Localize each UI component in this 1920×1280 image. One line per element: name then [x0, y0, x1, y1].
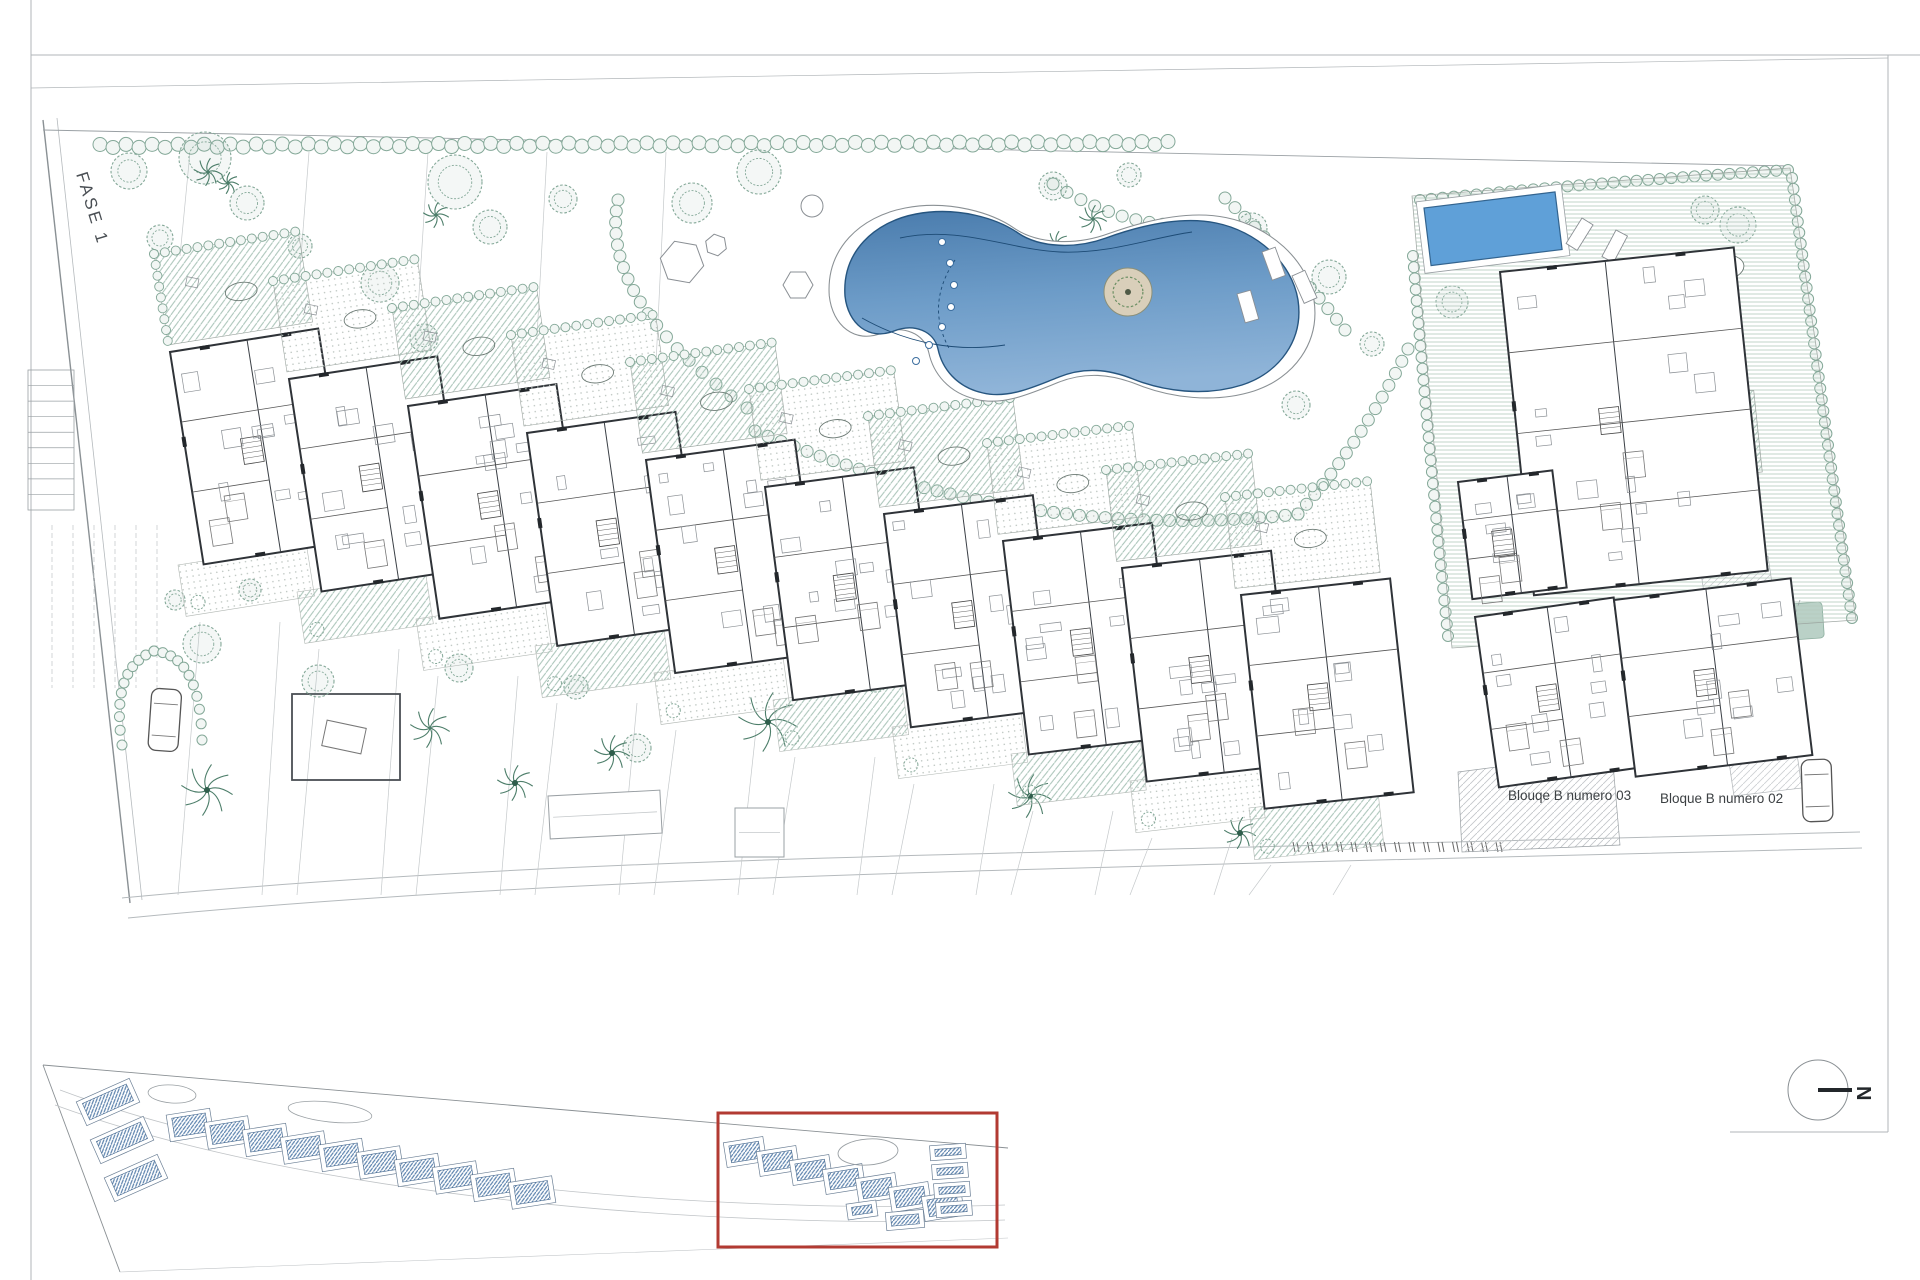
hedge-bush: [1355, 425, 1367, 437]
parking-number-mark: [1413, 842, 1415, 852]
tree-canopy: [111, 153, 147, 189]
bush: [640, 136, 654, 150]
bush: [1031, 135, 1045, 149]
tree: [473, 210, 507, 244]
minimap-pond: [287, 1098, 373, 1127]
tree-canopy: [302, 665, 334, 697]
bush: [106, 140, 120, 154]
bush: [458, 136, 472, 150]
tree-canopy: [473, 210, 507, 244]
hedge-bush: [1322, 303, 1334, 315]
hedge-bush: [1383, 379, 1395, 391]
minimap-pool: [837, 1137, 899, 1167]
tree-canopy: [147, 225, 173, 251]
garden-bush: [1178, 456, 1188, 466]
palm-frond: [738, 717, 768, 727]
palm-trunk: [1237, 830, 1243, 836]
palm-trunk: [609, 750, 615, 756]
hedge-bush: [117, 740, 127, 750]
building-block: [1456, 469, 1567, 605]
bush: [236, 140, 250, 154]
bush: [380, 137, 394, 151]
minimap-building: [930, 1143, 967, 1160]
car-body: [1801, 759, 1833, 822]
garden-terrace: [1220, 476, 1382, 589]
gazebo-hexagon: [783, 272, 813, 298]
hedge-bush: [1339, 324, 1351, 336]
north-label: N: [1852, 1086, 1874, 1100]
parking-number-mark: [1442, 842, 1444, 852]
garden-bush: [1275, 486, 1285, 496]
palm-tree: [497, 765, 533, 801]
hedge-bush: [1075, 194, 1087, 206]
garden-bush: [1253, 488, 1263, 498]
garden-bush: [1221, 451, 1231, 461]
bush: [1122, 138, 1136, 152]
stepping-stone: [939, 239, 946, 246]
palm-frond: [181, 785, 207, 793]
palm-frond: [743, 722, 770, 743]
hedge-bush: [1325, 468, 1337, 480]
hedge-bush: [1229, 202, 1241, 214]
bush: [1135, 135, 1149, 149]
bush: [484, 136, 498, 150]
stepping-stone: [926, 342, 933, 349]
palm-trunk: [204, 787, 210, 793]
building-outline: [1475, 598, 1638, 788]
garden-bush: [1243, 449, 1253, 459]
garden-bush: [1297, 484, 1307, 494]
hedge-bush: [196, 719, 206, 729]
garden-bush: [1145, 460, 1155, 470]
bush: [419, 140, 433, 154]
bush: [327, 137, 341, 151]
minimap-building: [885, 1209, 924, 1230]
hedge-bush: [1116, 210, 1128, 222]
car-body: [148, 688, 182, 752]
overview-minimap: [43, 1065, 1008, 1272]
bush: [940, 138, 954, 152]
building-outline: [1241, 579, 1414, 809]
plot-line: [976, 784, 994, 895]
tree: [183, 625, 221, 663]
bush: [1109, 135, 1123, 149]
minimap-building: [934, 1181, 971, 1198]
bush: [158, 140, 172, 154]
bloque-03-label: Blouqe B numero 03: [1508, 788, 1631, 803]
bush: [1096, 138, 1110, 152]
bush: [314, 140, 328, 154]
top-right-complex: [1412, 168, 1856, 648]
bush: [301, 137, 315, 151]
parking-number-mark: [1438, 842, 1440, 852]
gazebo-hexagon: [706, 234, 727, 256]
minimap-building: [936, 1200, 973, 1217]
palm-frond: [427, 708, 433, 728]
building-block: [1473, 597, 1638, 789]
minimap-building: [76, 1078, 140, 1125]
minimap-building: [846, 1200, 878, 1220]
bush: [1044, 138, 1058, 152]
bush: [770, 136, 784, 150]
bush: [796, 136, 810, 150]
tree-canopy: [1282, 391, 1310, 419]
hedge-bush: [188, 680, 198, 690]
bush: [497, 139, 511, 153]
plot-line: [1214, 838, 1232, 895]
bush: [406, 137, 420, 151]
minimap-building: [90, 1116, 154, 1163]
plot-line: [1333, 865, 1351, 895]
hedge-bush: [1423, 432, 1434, 443]
hedge-bush: [611, 239, 623, 251]
bush: [809, 138, 823, 152]
bush: [471, 139, 485, 153]
bush: [145, 137, 159, 151]
tree: [623, 734, 651, 762]
bush: [861, 138, 875, 152]
car: [148, 688, 182, 752]
hedge-bush: [1402, 343, 1414, 355]
hedge-bush: [1362, 414, 1374, 426]
tree-canopy: [428, 155, 482, 209]
minimap-roof: [939, 1186, 965, 1195]
hedge-bush: [192, 691, 202, 701]
bloque-02-label: Bloque B numero 02: [1660, 791, 1783, 806]
garden-bush: [1167, 457, 1177, 467]
hedge-bush: [1421, 409, 1432, 420]
tree: [1117, 163, 1141, 187]
palm-trunk: [512, 780, 518, 786]
bush: [1005, 135, 1019, 149]
bush: [432, 137, 446, 151]
round-planter: [801, 195, 823, 217]
bush: [340, 140, 354, 154]
gazebo-hexagon: [660, 241, 703, 282]
plot-line: [1095, 811, 1113, 895]
hedge-bush: [634, 296, 646, 308]
hedge-bush: [622, 273, 634, 285]
tree: [737, 150, 781, 194]
bush: [1083, 135, 1097, 149]
hedge-bush: [617, 262, 629, 274]
minimap-building: [104, 1154, 168, 1201]
bush: [953, 135, 967, 149]
site-boundary-left: [43, 120, 130, 903]
bush: [627, 139, 641, 153]
palm-trunk: [765, 719, 771, 725]
parking-number-mark: [1453, 842, 1455, 852]
bush: [575, 139, 589, 153]
hedge-bush: [612, 194, 624, 206]
bush: [744, 136, 758, 150]
bush: [666, 136, 680, 150]
hedge-bush: [197, 735, 207, 745]
plot-line: [892, 784, 914, 895]
hedge-bush: [1415, 340, 1426, 351]
minimap-boundary: [120, 1238, 1008, 1272]
island-tree-trunk: [1125, 289, 1131, 295]
pergola: [735, 808, 784, 857]
tree-canopy: [737, 150, 781, 194]
hedge-bush: [1417, 363, 1428, 374]
bush: [653, 139, 667, 153]
garden-bush: [1264, 487, 1274, 497]
garden-bush: [1210, 452, 1220, 462]
parking-number-mark: [1428, 842, 1430, 852]
tree-canopy: [549, 185, 577, 213]
bush: [614, 136, 628, 150]
garden-bush: [1134, 461, 1144, 471]
hedge-bush: [1413, 318, 1424, 329]
bush: [927, 135, 941, 149]
bush: [523, 139, 537, 153]
palm-frond: [202, 790, 210, 816]
hedge-bush: [1419, 386, 1430, 397]
bush: [731, 139, 745, 153]
sheet-frame-line: [31, 58, 1888, 88]
bush: [835, 138, 849, 152]
bush: [510, 136, 524, 150]
garden-bush: [1156, 459, 1166, 469]
stepping-stone: [948, 304, 955, 311]
tree: [672, 183, 712, 223]
building-block: [1239, 578, 1414, 810]
road-edge: [128, 848, 1862, 918]
bush: [966, 138, 980, 152]
bush: [445, 140, 459, 154]
bush: [992, 138, 1006, 152]
bush: [393, 140, 407, 154]
north-arrow: N: [1788, 1060, 1874, 1120]
bush: [692, 136, 706, 150]
bush: [848, 135, 862, 149]
palm-frond: [1091, 219, 1095, 233]
hedge-bush: [115, 699, 125, 709]
hedge-bush: [184, 670, 194, 680]
garden-bush: [1220, 492, 1230, 502]
stepping-stone: [913, 358, 920, 365]
stairs-outline: [28, 370, 74, 510]
garden-bush: [1188, 455, 1198, 465]
tree-canopy: [230, 186, 264, 220]
hedge-bush: [1369, 403, 1381, 415]
palm-frond: [207, 786, 233, 794]
bush: [1161, 135, 1175, 149]
minimap-roof: [935, 1148, 961, 1157]
hedge-bush: [1412, 307, 1423, 318]
fase-label: FASE 1: [72, 170, 112, 248]
bush: [275, 137, 289, 151]
tree-canopy: [623, 734, 651, 762]
tree-canopy: [1360, 332, 1384, 356]
bush: [718, 136, 732, 150]
garden-bush: [1362, 476, 1372, 486]
stepping-stone: [947, 260, 954, 267]
stepping-stone: [939, 324, 946, 331]
tree: [1039, 172, 1067, 200]
hedge-bush: [1330, 313, 1342, 325]
hedge-bush: [1219, 192, 1231, 204]
garden-bush: [1286, 485, 1296, 495]
minimap-roof: [891, 1214, 920, 1226]
tree-canopy: [1312, 260, 1346, 294]
plot-line: [381, 649, 399, 895]
tree: [1312, 260, 1346, 294]
tree: [230, 186, 264, 220]
hedge-bush: [115, 725, 125, 735]
bush: [1057, 135, 1071, 149]
bush: [874, 135, 888, 149]
bush: [1070, 138, 1084, 152]
tree: [1282, 391, 1310, 419]
bush: [979, 135, 993, 149]
bush: [887, 138, 901, 152]
hedge-bush: [1414, 329, 1425, 340]
hedge-bush: [1348, 436, 1360, 448]
tree: [111, 153, 147, 189]
garden-bush: [1242, 490, 1252, 500]
hedge-bush: [1422, 420, 1433, 431]
hedge-bush: [1340, 447, 1352, 459]
hedge-bush: [1376, 391, 1388, 403]
bush: [1148, 138, 1162, 152]
tree-canopy: [183, 625, 221, 663]
tree: [302, 665, 334, 697]
bush: [679, 139, 693, 153]
planter-inner: [322, 720, 367, 754]
bush: [822, 135, 836, 149]
bush: [914, 138, 928, 152]
hedge-bush: [1416, 352, 1427, 363]
plot-line: [1249, 865, 1271, 895]
bush: [601, 139, 615, 153]
hedge-bush: [1420, 397, 1431, 408]
drawing-sheet: FASE 1 Blouqe B numero 03 Bloque B numer…: [0, 0, 1920, 1280]
garden-bush: [1101, 465, 1111, 475]
garden-bush: [1329, 480, 1339, 490]
palm-frond: [203, 764, 211, 790]
tree: [165, 590, 185, 610]
bush: [562, 136, 576, 150]
car: [1801, 759, 1833, 822]
bush: [536, 136, 550, 150]
palm-frond: [763, 722, 773, 752]
minimap-roof: [937, 1167, 963, 1176]
hedge-bush: [628, 284, 640, 296]
bush: [119, 137, 133, 151]
minimap-building: [932, 1162, 969, 1179]
pergola: [548, 790, 662, 839]
hedge-bush: [1333, 458, 1345, 470]
bush: [705, 139, 719, 153]
garden-bush: [1199, 454, 1209, 464]
bush: [367, 140, 381, 154]
tree: [428, 155, 482, 209]
bush: [1018, 138, 1032, 152]
garden-bush: [1340, 479, 1350, 489]
palm-tree: [181, 764, 234, 817]
hedge-bush: [1418, 375, 1429, 386]
garden-bush: [1231, 491, 1241, 501]
hedge-bush: [610, 205, 622, 217]
tree-canopy: [1039, 172, 1067, 200]
garden-bush: [1308, 482, 1318, 492]
stepping-stone: [951, 282, 958, 289]
parking-number-mark: [1424, 842, 1426, 852]
tree-canopy: [672, 183, 712, 223]
palm-frond: [1079, 217, 1093, 221]
hedge-bush: [149, 646, 159, 656]
garden-bush: [1232, 450, 1242, 460]
bush: [132, 140, 146, 154]
main-pool-water: [845, 212, 1299, 395]
site-plan-svg: FASE 1 Blouqe B numero 03 Bloque B numer…: [0, 0, 1920, 1280]
plot-line: [262, 622, 280, 895]
minimap-roof: [941, 1205, 967, 1214]
bush: [93, 138, 107, 152]
tree: [1360, 332, 1384, 356]
palm-frond: [1093, 217, 1107, 221]
hedge-bush: [116, 688, 126, 698]
hedge-bush: [660, 331, 672, 343]
tree: [147, 225, 173, 251]
plot-line: [416, 676, 438, 895]
parking-number-mark: [1457, 842, 1459, 852]
garden-bush: [1112, 464, 1122, 474]
hedge-bush: [610, 216, 622, 228]
bush: [353, 137, 367, 151]
tree-canopy: [165, 590, 185, 610]
bush: [262, 140, 276, 154]
hedge-bush: [1396, 355, 1408, 367]
tree: [549, 185, 577, 213]
bush: [588, 136, 602, 150]
hedge-bush: [114, 712, 124, 722]
hedge-bush: [1389, 367, 1401, 379]
hedge-bush: [610, 228, 622, 240]
bush: [549, 139, 563, 153]
tree-canopy: [1117, 163, 1141, 187]
bush: [249, 137, 263, 151]
hedge-bush: [194, 704, 204, 714]
bush: [783, 139, 797, 153]
bush: [288, 140, 302, 154]
hedge-bush: [614, 250, 626, 262]
garden-bush: [1318, 481, 1328, 491]
building-block: [1612, 577, 1813, 778]
garden-bush: [1351, 478, 1361, 488]
garden-bush: [1123, 462, 1133, 472]
palm-tree: [410, 708, 450, 748]
palm-frond: [410, 725, 430, 731]
bush: [901, 135, 915, 149]
minimap-pond: [147, 1083, 196, 1104]
